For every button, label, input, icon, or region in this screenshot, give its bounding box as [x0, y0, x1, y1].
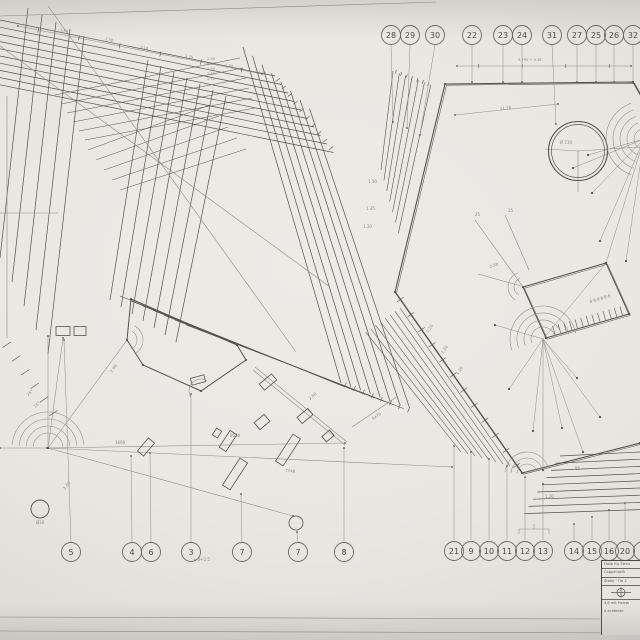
dim-label: 11.20 [500, 105, 512, 111]
dim-label: 25 [508, 208, 514, 213]
dim-label: 2.50 [207, 77, 216, 81]
balloon-number: 3 [188, 548, 193, 557]
title-block: Halle für Streu Coppenrath Statik · Tle … [601, 560, 640, 635]
member-line [395, 311, 503, 464]
plan-rectangle [276, 434, 301, 466]
seam-tick [288, 93, 292, 96]
node-dot [532, 430, 534, 432]
dim-label: 2.50 [207, 72, 216, 76]
seam-tick [503, 448, 510, 453]
balloon-number: 27 [572, 31, 582, 40]
seam-tick [461, 388, 468, 393]
balloon-number: 21 [449, 547, 459, 556]
dim-label: 15° [32, 400, 41, 408]
seam-tick [276, 78, 280, 81]
balloon-number: 16 [604, 547, 614, 556]
dim-label: 1.20 [440, 344, 449, 355]
balloon-number: 30 [430, 31, 440, 40]
seam-tick [492, 433, 499, 438]
balloon-number: 31 [547, 31, 557, 40]
node-dot [296, 531, 298, 533]
member-line [538, 488, 640, 492]
member-line [547, 474, 640, 478]
construction-line [545, 149, 578, 151]
member-line [385, 318, 489, 460]
member-line [281, 82, 380, 397]
outline [395, 82, 640, 473]
dim-label: 25 [475, 212, 481, 217]
dim-label: 7748 [285, 468, 296, 474]
seam-tick [609, 310, 611, 319]
node-dot [494, 324, 496, 326]
node-dot [149, 452, 151, 454]
outline [127, 299, 246, 391]
seam-tick [408, 312, 415, 317]
node-dot [236, 344, 238, 346]
title-block-row: Statik · Tle 2 [602, 578, 640, 586]
seam-tick [397, 297, 404, 302]
member-line [120, 149, 246, 190]
node-dot [542, 483, 544, 485]
outline-inner [397, 83, 640, 474]
member-line [61, 68, 243, 104]
balloon-number: 20 [620, 547, 630, 556]
balloon-leader [64, 340, 71, 542]
plan-rectangle [74, 327, 86, 336]
balloon-number: 4 [129, 548, 134, 557]
projection-symbol-icon [602, 586, 640, 599]
member-line [79, 98, 252, 131]
node-dot [608, 509, 610, 511]
node-dot [625, 260, 627, 262]
member-line [132, 72, 174, 314]
seam-tick [482, 418, 489, 423]
angle-arc [620, 116, 636, 161]
member-line [0, 85, 334, 153]
dimension-line [48, 443, 345, 448]
leader-ray [495, 325, 543, 339]
node-dot [521, 472, 523, 474]
node-dot [628, 313, 630, 315]
dim-label: 4x70 [371, 411, 382, 421]
seam-tick [323, 139, 327, 142]
dim-label: 8500 [230, 433, 241, 438]
node-dot [343, 447, 345, 449]
node-dot [245, 359, 247, 361]
plan-rectangle [322, 430, 334, 442]
member-line [243, 47, 341, 383]
seam-tick [411, 76, 412, 80]
seam-tick [300, 109, 304, 112]
balloon-number: 28 [386, 31, 396, 40]
seam-tick [603, 311, 605, 320]
dim-label: 1.50 [368, 179, 377, 184]
dimension-line [48, 338, 63, 448]
dim-label: Ø30 [36, 520, 45, 525]
seam-tick [3, 342, 11, 348]
node-dot [521, 81, 523, 83]
node-dot [591, 192, 593, 194]
member-line [393, 80, 419, 212]
seam-tick [381, 397, 383, 402]
balloon-number: 9 [468, 547, 473, 556]
member-line [0, 27, 282, 84]
balloon-leader [150, 453, 151, 542]
leader-ray [533, 339, 543, 431]
node-dot [62, 337, 64, 339]
node-dot [599, 240, 601, 242]
dimension-line [48, 448, 293, 516]
balloon-leader [420, 45, 435, 135]
balloon-number: 29 [405, 31, 415, 40]
plan-rectangle [212, 428, 221, 438]
dim-label: 2.98 [109, 363, 118, 374]
dim-label: 1.20 [455, 365, 464, 376]
node-dot [561, 427, 563, 429]
member-line [390, 315, 496, 462]
angle-arc [634, 130, 640, 149]
node-dot [454, 114, 456, 116]
node-dot [451, 466, 453, 468]
seam-tick [12, 356, 20, 362]
dim-label: 2.50 [207, 62, 216, 66]
node-dot [630, 65, 632, 67]
dim-label: 3.10 [140, 45, 149, 51]
member-line [524, 510, 640, 514]
node-dot [572, 167, 574, 169]
dim-label: 4.790 + 4.16 [518, 58, 542, 62]
dim-label: 25° [25, 388, 34, 396]
leader-ray [543, 339, 577, 378]
angle-arc [135, 326, 143, 353]
node-dot [470, 451, 472, 453]
construction-line [475, 220, 523, 287]
balloon-number: 15 [587, 547, 597, 556]
title-block-row: 4 achtecke [602, 608, 640, 615]
construction-line [505, 215, 529, 270]
node-dot [406, 127, 408, 129]
node-dot [456, 65, 458, 67]
seam-tick [586, 316, 588, 325]
dim-label: 2.50 [60, 28, 69, 34]
seam-tick [620, 306, 622, 315]
plan-rectangle [56, 327, 70, 336]
node-dot [130, 298, 132, 300]
node-dot [392, 121, 394, 123]
seam-tick [439, 358, 446, 363]
plan-rectangle [297, 408, 313, 423]
member-line [396, 83, 425, 223]
leader-ray [509, 339, 543, 389]
title-block-row: Coppenrath [602, 569, 640, 577]
balloon-number: 11 [502, 547, 512, 556]
member-line [376, 325, 476, 456]
node-dot [419, 134, 421, 136]
dim-label: 1.20 [425, 323, 434, 334]
node-dot [190, 393, 192, 395]
node-dot [576, 377, 578, 379]
dim-label: 1.40 [258, 70, 267, 76]
dim-label: 8·8·8·8·8·8 [589, 293, 612, 304]
node-dot [200, 390, 202, 392]
member-line [390, 78, 412, 202]
balloon-number: 7 [295, 548, 300, 557]
member-line [272, 73, 371, 393]
outline [523, 263, 629, 338]
plan-rectangle [137, 438, 154, 456]
seam-tick [311, 124, 315, 127]
balloon-number: 25 [591, 31, 601, 40]
member-line [560, 452, 640, 456]
construction-line [0, 2, 436, 16]
dim-label: 2.50 [207, 57, 216, 61]
node-dot [613, 81, 615, 83]
balloon-number: 6 [148, 548, 153, 557]
node-dot [582, 451, 584, 453]
member-line [310, 109, 410, 409]
plan-rectangle [190, 375, 205, 385]
seam-tick [400, 72, 401, 76]
member-line [104, 127, 228, 170]
technical-drawing: 2.502.503.101.752.501.402.502.502.502.50… [0, 0, 640, 640]
balloon-number: 24 [517, 31, 527, 40]
member-line [0, 8, 28, 258]
seam-tick [597, 313, 599, 322]
node-dot [240, 493, 242, 495]
node-dot [624, 502, 626, 504]
node-dot [344, 442, 346, 444]
node-dot [17, 25, 19, 27]
construction-line [0, 617, 600, 619]
dim-label: 2.50 [62, 480, 72, 490]
leader-ray [543, 339, 583, 452]
construction-line [0, 631, 640, 633]
node-dot [444, 83, 446, 85]
balloon-leader [297, 532, 298, 542]
seam-tick [581, 318, 583, 327]
dim-label: 2.50 [307, 391, 317, 401]
plan-rectangle [223, 458, 248, 490]
seam-tick [406, 74, 407, 78]
seam-tick [422, 80, 423, 84]
node-dot [508, 388, 510, 390]
node-dot [555, 123, 557, 125]
member-line [542, 481, 640, 485]
node-dot [542, 469, 544, 471]
balloon-leader [241, 494, 242, 542]
member-line [24, 22, 56, 306]
angle-arc [627, 123, 638, 155]
dim-label: 1.20 [363, 224, 372, 229]
balloon-number: 12 [520, 547, 530, 556]
seam-tick [21, 369, 29, 375]
member-line [291, 91, 391, 401]
node-dot [576, 81, 578, 83]
seam-tick [418, 327, 425, 332]
member-line [529, 502, 640, 506]
node-dot [605, 262, 607, 264]
balloon-number: 8 [341, 548, 346, 557]
seam-tick [395, 70, 396, 74]
seam-tick [329, 147, 333, 150]
seam-tick [40, 397, 48, 403]
balloon-number: 14 [569, 547, 579, 556]
balloon-number: 7 [239, 548, 244, 557]
balloon-leader [552, 45, 556, 124]
member-line [371, 329, 468, 454]
node-dot [599, 416, 601, 418]
balloon-number: 26 [609, 31, 619, 40]
dim-label: ± 0+2.5 [193, 557, 210, 562]
drawing-circle [289, 516, 303, 530]
projection-symbol-row [602, 586, 640, 600]
node-dot [394, 291, 396, 293]
node-dot [545, 337, 547, 339]
angle-arc [132, 331, 137, 348]
node-dot [130, 455, 132, 457]
node-dot [524, 476, 526, 478]
member-line [300, 100, 400, 405]
node-dot [557, 103, 559, 105]
dimension-line [48, 448, 452, 467]
balloon-leader [131, 456, 132, 542]
balloon-number: 23 [498, 31, 508, 40]
dim-label: 1.35 [366, 206, 375, 211]
seam-tick [592, 315, 594, 324]
dimension-line [48, 340, 127, 448]
member-line [400, 308, 510, 466]
plan-rectangle [254, 414, 270, 429]
member-line [381, 71, 393, 170]
photographed-drawing-sheet: 2.502.503.101.752.501.402.502.502.502.50… [0, 0, 640, 640]
dim-label: Ø 730 [560, 140, 573, 145]
dim-label: 85 [575, 466, 581, 471]
balloon-number: 5 [68, 548, 73, 557]
member-line [0, 63, 314, 127]
node-dot [632, 81, 634, 83]
seam-tick [471, 403, 478, 408]
seam-tick [429, 342, 436, 347]
member-line [0, 20, 275, 76]
member-line [12, 15, 42, 282]
balloon-number: 32 [628, 31, 638, 40]
balloon-number: 10 [484, 547, 494, 556]
node-dot [142, 364, 144, 366]
dim-label: 2.50 [489, 261, 499, 269]
seam-tick [408, 408, 410, 413]
title-block-row: 3,8 mit Holzw. [602, 600, 640, 607]
node-dot [488, 458, 490, 460]
balloon-leader [407, 45, 410, 128]
dim-label: 1660 [115, 440, 126, 445]
node-dot [591, 516, 593, 518]
node-dot [595, 81, 597, 83]
seam-tick [31, 383, 39, 389]
node-dot [126, 339, 128, 341]
dim-label: 2.50 [207, 67, 216, 71]
construction-line [255, 367, 347, 442]
angle-arc [613, 110, 633, 168]
dim-label: 1.20 [545, 494, 554, 499]
drawing-circle [31, 500, 49, 518]
seam-tick [614, 308, 616, 317]
member-line [551, 466, 640, 470]
balloon-number: 22 [467, 31, 477, 40]
balloon-number: 13 [538, 547, 548, 556]
node-dot [573, 523, 575, 525]
node-dot [453, 445, 455, 447]
node-dot [587, 154, 589, 156]
angle-arc [508, 273, 518, 300]
node-dot [47, 447, 49, 449]
node-dot [0, 447, 1, 449]
title-block-row: Halle für Streu [602, 561, 640, 569]
node-dot [63, 339, 65, 341]
dim-label: 2.50 [225, 63, 234, 69]
node-dot [502, 81, 504, 83]
seam-tick [575, 319, 577, 328]
node-dot [47, 335, 49, 337]
node-dot [471, 81, 473, 83]
